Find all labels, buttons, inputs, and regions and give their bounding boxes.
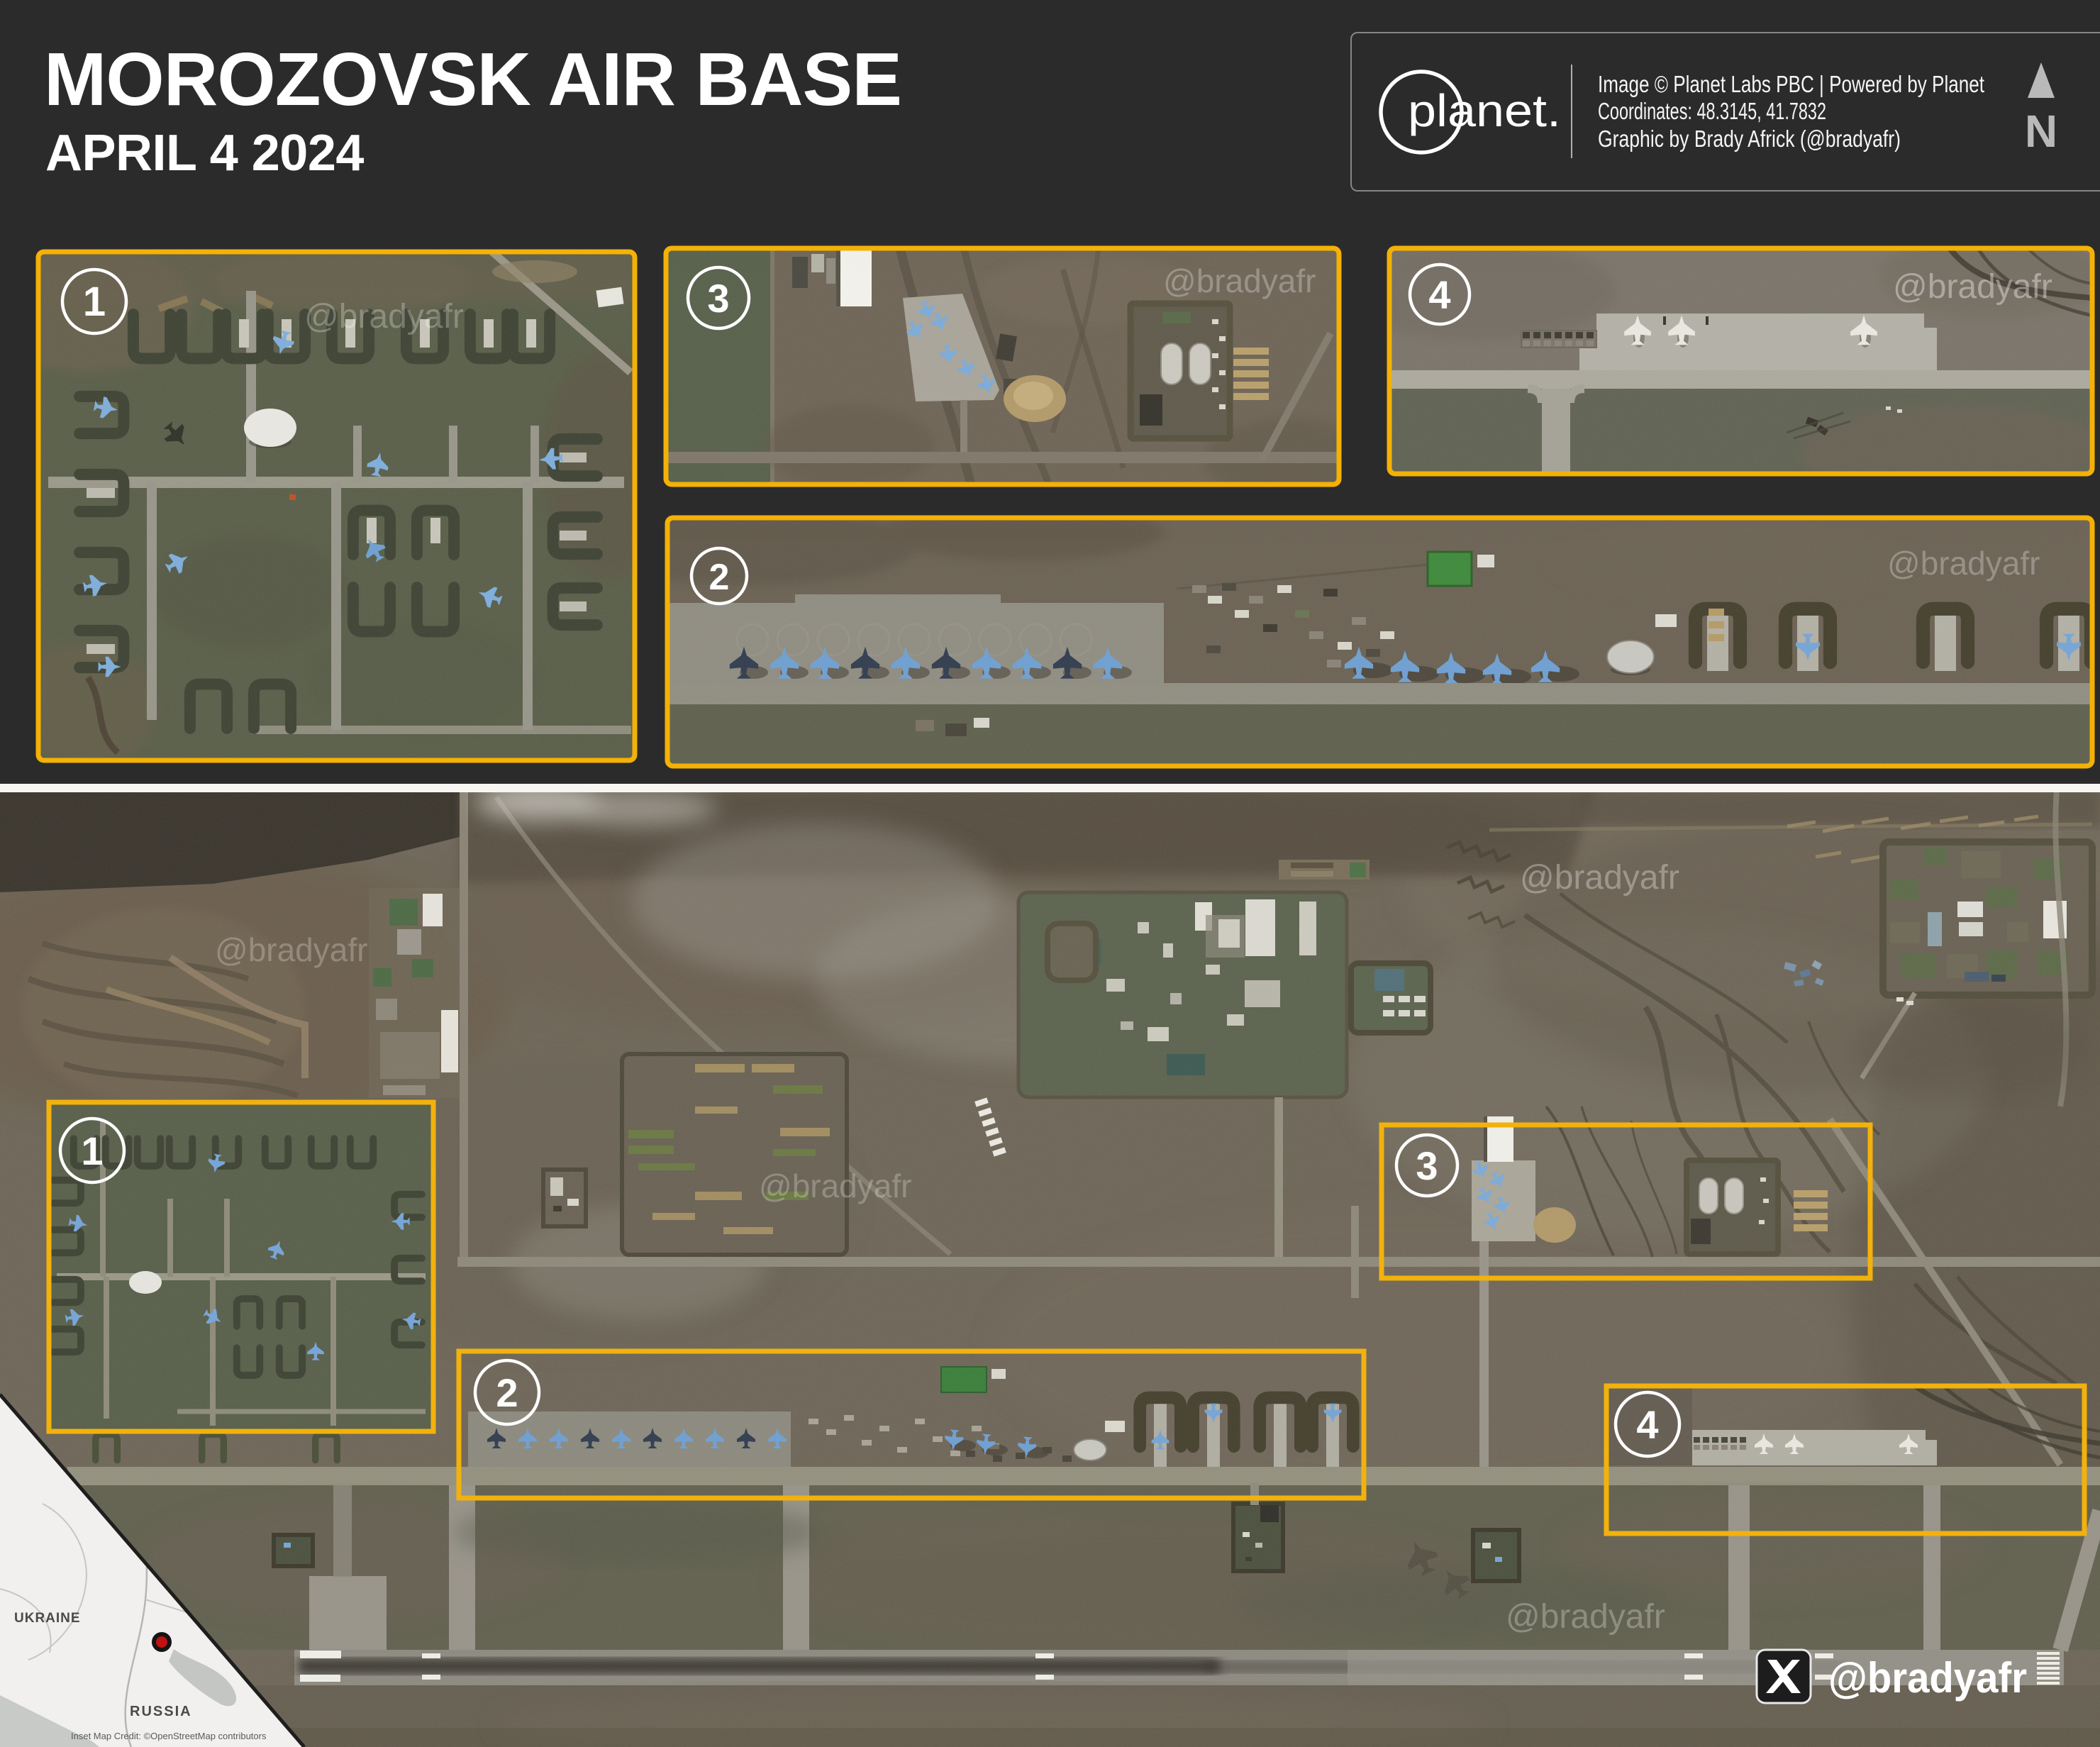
svg-text:Coordinates: 48.3145, 41.7832: Coordinates: 48.3145, 41.7832 — [1598, 98, 1826, 124]
svg-text:RUSSIA: RUSSIA — [130, 1704, 192, 1719]
svg-text:Image © Planet Labs PBC | Powe: Image © Planet Labs PBC | Powered by Pla… — [1598, 71, 1984, 97]
svg-text:@bradyafr: @bradyafr — [1887, 545, 2040, 582]
svg-text:2: 2 — [709, 557, 730, 598]
svg-text:4: 4 — [1428, 272, 1450, 317]
svg-text:3: 3 — [707, 276, 729, 321]
svg-text:Inset Map Credit: ©OpenStreetM: Inset Map Credit: ©OpenStreetMap contrib… — [71, 1731, 267, 1741]
svg-text:1: 1 — [83, 279, 106, 325]
svg-text:@bradyafr: @bradyafr — [1893, 268, 2052, 306]
svg-text:Graphic by Brady Africk (@brad: Graphic by Brady Africk (@bradyafr) — [1598, 126, 1901, 152]
svg-text:@bradyafr: @bradyafr — [1828, 1654, 2027, 1702]
svg-text:planet.: planet. — [1408, 85, 1561, 136]
svg-text:UKRAINE: UKRAINE — [14, 1611, 81, 1626]
svg-text:N: N — [2025, 106, 2057, 157]
svg-text:@bradyafr: @bradyafr — [304, 298, 464, 335]
svg-text:@bradyafr: @bradyafr — [1163, 262, 1316, 299]
